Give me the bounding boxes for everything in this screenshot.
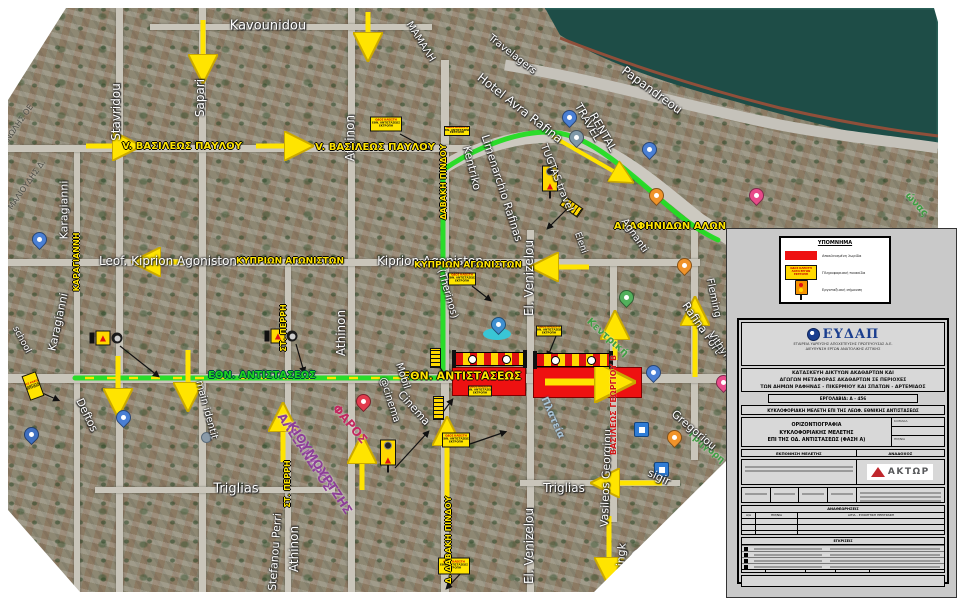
company-box: ΕΥΔΑΠ ΕΤΑΙΡΕΙΑ ΥΔΡΕΥΣΗΣ ΑΠΟΧΕΤΕΥΣΗΣ ΠΡΩΤ… [741,322,945,366]
street-label: Triglias [213,483,258,496]
red-zone-swatch [785,251,817,260]
legend-item-info-sign: ΟΔΟΣ ΚΛΕΙΣΤΗ ΛΟΓΩ ΕΡΓΩΝ ΕΚΤΡΟΠΗ Πληροφορ… [784,265,886,280]
edge-on-sign [430,348,441,368]
sign-text-line: ΕΚΤΡΟΠΗ [27,385,41,393]
barrier-post [533,351,537,369]
sign-face [114,335,120,341]
pin-dot [361,399,366,404]
street-label: ΣΤ. ΠΕΡΡΗ [284,460,292,507]
revisions-title: ΑΝΑΘΕΩΡΗΣΕΙΣ [742,506,944,513]
road-barrier [536,353,610,367]
pin-dot [647,147,652,152]
approvals-table: ΕΓΚΡΙΣΕΙΣ [741,537,945,573]
road-closed-info-sign: ΟΔΟΣ ΚΛΕΙΣΤΗΕΘΝ. ΑΝΤΙΣΤΑΣΕΩΣΕΚΤΡΟΠΗ [536,326,562,337]
legend-item-closed-lane: Αποκλεισμένη λωρίδα [784,248,886,263]
street-label: V. ΒΑΣΙΛΕΩΣ ΠΑΥΛΟΥ [122,142,242,152]
signature-strip [741,487,945,503]
company-dept: ΔΙΕΥΘΥΝΣΗ ΕΡΓΩΝ ΑΝΑΤΟΛΙΚΗΣ ΑΤΤΙΚΗΣ [742,347,944,352]
sign-post [265,331,270,342]
traffic-plan-drawing: ▲▲▲▲ΟΔΟΣ ΚΛΕΙΣΤΗΕΘΝ. ΑΝΤΙΣΤΑΣΕΩΣΕΚΤΡΟΠΗΟ… [0,0,960,600]
street-label: Stavridou [110,83,122,141]
pin-dot [496,322,501,327]
column-headers: ΕΚΠΟΝΗΣΗ ΜΕΛΕΤΗΣ ΑΝΑΔΟΧΟΣ [741,449,945,457]
road-closed-info-sign: ΟΔΟΣ ΚΛΕΙΣΤΗΕΘΝ. ΑΝΤΙΣΤΑΣΕΩΣΕΚΤΡΟΠΗ [448,273,476,286]
barrier-lamp [502,355,511,364]
regulatory-sign [287,331,298,342]
date-cell: ΗΜ/ΝΙΑ [892,436,944,445]
project-box: ΚΑΤΑΣΚΕΥΗ ΔΙΚΤΥΩΝ ΑΚΑΘΑΡΤΩΝ ΚΑΙ ΑΓΩΓΩΝ Μ… [741,368,945,392]
street-label: Sapari [194,79,206,117]
street-label: Δ. ΔΑΒΑΚΗ ΠΙΝΔΟΥ [445,496,453,584]
pin-dot [121,415,126,420]
study-bar: ΚΥΚΛΟΦΟΡΙΑΚΗ ΜΕΛΕΤΗ ΕΠΙ ΤΗΣ ΛΕΩΦ. ΕΘΝΙΚΗ… [741,405,945,415]
eydap-logo: ΕΥΔΑΠ [742,327,944,342]
title-block: ΕΥΔΑΠ ΕΤΑΙΡΕΙΑ ΥΔΡΕΥΣΗΣ ΑΠΟΧΕΤΕΥΣΗΣ ΠΡΩΤ… [737,318,949,584]
street-label: Triglias [543,482,585,494]
street-label: ΚΥΠΡΙΩΝ ΑΓΩΝΙΣΤΩΝ [414,262,522,271]
edge-on-sign [433,396,444,420]
road-closed-info-sign: ΟΔΟΣ ΚΛΕΙΣΤΗΕΘΝ. ΑΝΤΙΣΤΑΣΕΩΣΕΚΤΡΟΠΗ [444,126,470,136]
sign-text-line: ΕΚΤΡΟΠΗ [450,132,464,135]
street-label: Kavounidou [230,20,306,33]
barrier-post [452,350,456,368]
regulatory-sign [112,333,123,344]
drawing-title: ΟΡΙΖΟΝΤΙΟΓΡΑΦΙΑ [742,422,891,430]
sign-text-line: ΕΚΤΡΟΠΗ [379,125,393,128]
street-label: V. ΒΑΣΙΛΕΩΣ ΠΑΥΛΟΥ [315,143,435,153]
street-label: Athinon [335,310,347,356]
sign-text-line: ΕΚΤΡΟΠΗ [542,332,556,335]
street-label: ΕΘΝ. ΑΝΤΙΣΤΑΣΕΩΣ [403,371,522,382]
road-barrier [455,352,524,366]
street-label: ΒΑΣΙΛΕΩΣ ΓΕΩΡΓΙΟΥ Β [610,355,618,455]
road-closed-info-sign: ΟΔΟΣ ΚΛΕΙΣΤΗΕΘΝ. ΑΝΤΙΣΤΑΣΕΩΣΕΚΤΡΟΠΗ [370,117,402,132]
street-label: El. Venizelou [523,240,535,316]
pin-dot [754,193,759,198]
road-closed-info-sign: ΟΔΟΣ ΚΛΕΙΣΤΗΕΘΝ. ΑΝΤΙΣΤΑΣΕΩΣΕΚΤΡΟΠΗ [468,386,492,397]
warning-triangle-sign: ▲ [385,457,391,463]
street-label: ΣΤ. ΠΕΡΡΗ [280,304,288,351]
barrier-lamp [587,356,596,365]
barrier-lamp [468,355,477,364]
pin-glyph [639,427,645,433]
aktor-logo-triangle [871,467,885,477]
pin-dot [682,263,687,268]
closed-road-zone [533,367,642,398]
designer-contractor-row: ΑΚΤΩΡ [741,459,945,485]
road-closed-info-sign: ΟΔΟΣ ΚΛΕΙΣΤΗΕΘΝ. ΑΝΤΙΣΤΑΣΕΩΣΕΚΤΡΟΠΗ [438,558,470,575]
sign-text-line: ΕΚΤΡΟΠΗ [455,280,469,283]
eydap-logo-icon [807,328,820,341]
pin-dot [37,237,42,242]
contract-bar: ΕΡΓΟΛΑΒΙΑ: Α - 456 [768,394,918,403]
barrier-lamp [551,356,560,365]
street-label: Leof. Kiprion Agoniston [99,255,237,267]
sign-post [90,333,95,344]
warning-triangle-sign: ▲ [96,331,111,346]
pin-dot [567,115,572,120]
work-signal-icon [795,280,808,300]
sign-post [387,466,389,473]
map-pin-square [634,422,649,437]
barrier-post [523,350,527,368]
notes-box [741,575,945,587]
street-label: ΚΥΠΡΙΩΝ ΑΓΩΝΙΣΤΩΝ [236,258,344,267]
drawing-box: ΟΡΙΖΟΝΤΙΟΓΡΑΦΙΑ ΚΥΚΛΟΦΟΡΙΑΚΗΣ ΜΕΛΕΤΗΣ ΕΠ… [741,417,945,447]
road-closed-info-sign: ΟΔΟΣ ΚΛΕΙΣΤΗΕΘΝ. ΑΝΤΙΣΤΑΣΕΩΣΕΚΤΡΟΠΗ [442,433,470,448]
street-label: Athinon [344,115,356,161]
street-label: ΕΘΝ. ΑΝΤΙΣΤΑΣΕΩΣ [208,371,316,381]
pin-dot [29,432,34,437]
legend-item-signal: Εργοταξιακή σήμανση [784,282,886,297]
roadworks-sign-assembly: ▲ [380,440,396,473]
legend-box: ΥΠΟΜΝΗΜΑ Αποκλεισμένη λωρίδα ΟΔΟΣ ΚΛΕΙΣΤ… [779,236,891,304]
aktor-logo: ΑΚΤΩΡ [867,464,933,480]
pin-dot [654,193,659,198]
sign-text-line: ΕΚΤΡΟΠΗ [473,392,487,395]
legend-title: ΥΠΟΜΝΗΜΑ [784,240,886,246]
street-label: Karagianni [59,181,70,240]
sign-text-line: ΕΚΤΡΟΠΗ [449,441,463,444]
street-label: Athinon [288,526,300,572]
sign-board: ▲ [380,440,396,466]
street-label: ΔΑΒΑΚΗ ΠΙΝΔΟΥ [440,144,448,220]
street-label: ΚΑΡΑΓΙΑΝΝΗ [73,233,81,292]
street-label: El. Venizelou [523,508,535,584]
regulatory-sign [384,442,392,450]
pin-dot [651,370,656,375]
sign-post [549,192,551,199]
pin-dot [574,135,579,140]
pin-dot [624,295,629,300]
approvals-title: ΕΓΚΡΙΣΕΙΣ [742,538,944,545]
pin-dot [672,435,677,440]
scale-cell: ΚΛΙΜΑΚΑ [892,418,944,427]
roadworks-sign-assembly: ▲ [90,331,123,346]
revisions-table: ΑΝΑΘΕΩΡΗΣΕΙΣ Α/Α ΗΜ/ΝΙΑ ΑΙΤΙΑ - ΣΥΝΟΠΤΙΚ… [741,505,945,535]
sign-face [289,333,295,339]
info-sign-swatch: ΟΔΟΣ ΚΛΕΙΣΤΗ ΛΟΓΩ ΕΡΓΩΝ ΕΚΤΡΟΠΗ [785,265,817,280]
